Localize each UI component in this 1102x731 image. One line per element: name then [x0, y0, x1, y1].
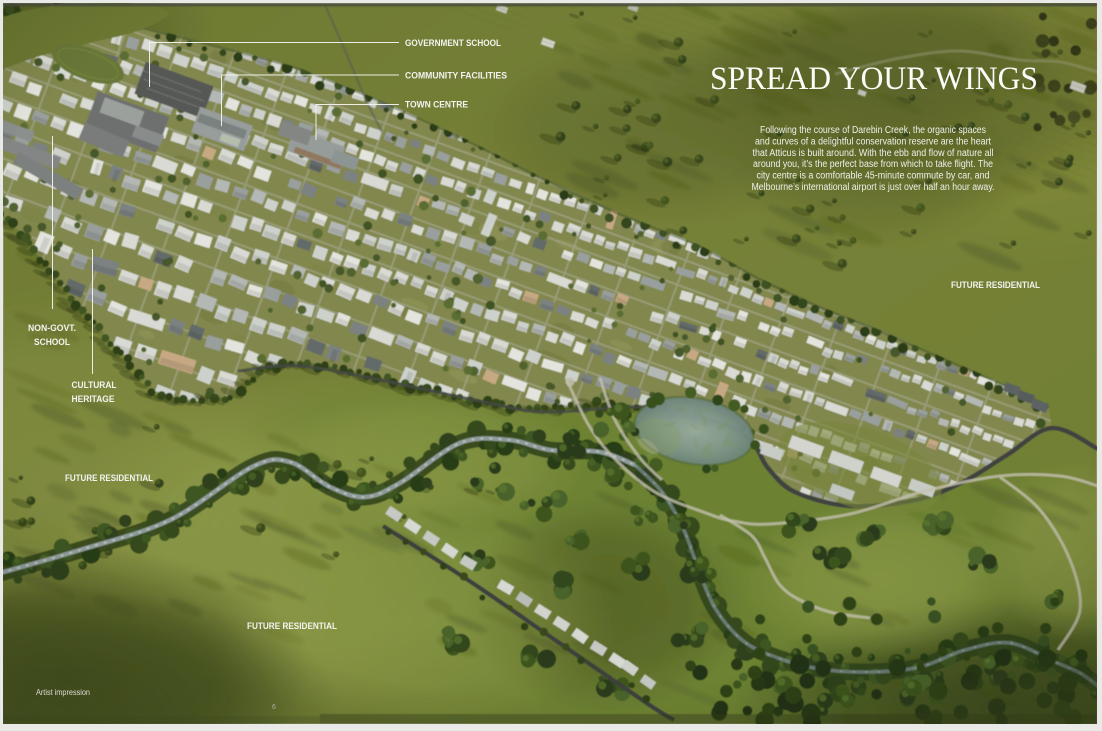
svg-text:SCHOOL: SCHOOL [34, 337, 71, 347]
svg-text:that Atticus is built around.: that Atticus is built around. With the e… [753, 148, 994, 159]
svg-text:around you, it’s the perfect b: around you, it’s the perfect base from w… [753, 159, 993, 170]
svg-text:FUTURE RESIDENTIAL: FUTURE RESIDENTIAL [65, 473, 154, 483]
svg-text:city centre is a comfortable 4: city centre is a comfortable 45-minute c… [757, 171, 990, 182]
svg-text:and curves of a delightful con: and curves of a delightful conservation … [755, 136, 991, 147]
svg-text:FUTURE RESIDENTIAL: FUTURE RESIDENTIAL [247, 621, 338, 631]
svg-text:6: 6 [272, 704, 276, 711]
svg-text:HERITAGE: HERITAGE [72, 394, 115, 404]
svg-text:Artist impression: Artist impression [36, 688, 90, 697]
svg-text:FUTURE RESIDENTIAL: FUTURE RESIDENTIAL [951, 280, 1041, 290]
svg-text:Following the course of Darebi: Following the course of Darebin Creek, t… [760, 125, 986, 136]
svg-text:NON-GOVT.: NON-GOVT. [28, 323, 76, 333]
svg-text:COMMUNITY FACILITIES: COMMUNITY FACILITIES [405, 71, 507, 81]
svg-text:CULTURAL: CULTURAL [72, 380, 118, 390]
svg-text:GOVERNMENT SCHOOL: GOVERNMENT SCHOOL [405, 38, 502, 48]
svg-text:Melbourne’s international airp: Melbourne’s international airport is jus… [752, 182, 995, 193]
svg-text:SPREAD YOUR WINGS: SPREAD YOUR WINGS [710, 61, 1038, 97]
svg-text:TOWN CENTRE: TOWN CENTRE [405, 100, 468, 110]
